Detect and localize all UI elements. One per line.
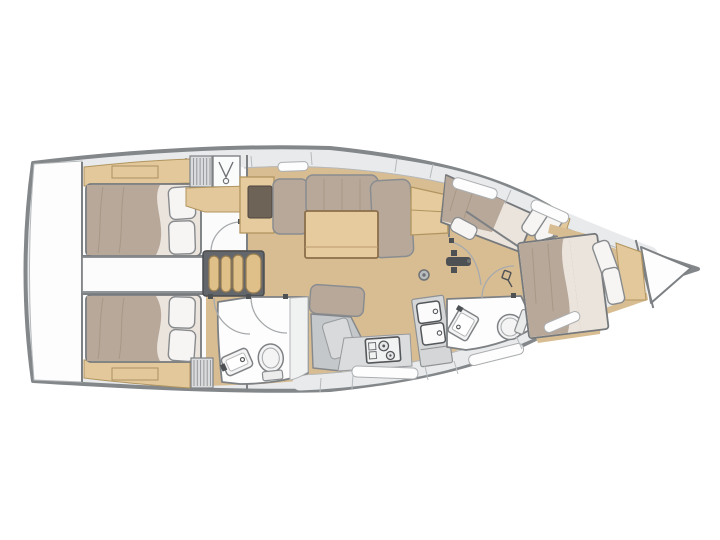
- aft-starboard-pillow-1: [168, 297, 195, 329]
- yacht-floor-plan: Sailing yacht interior layout plan (top …: [0, 0, 720, 540]
- companionway-counter: [186, 186, 247, 212]
- aft-starboard-blanket: [87, 296, 161, 361]
- mast-post: [419, 270, 429, 280]
- sofa-seat-left: [273, 179, 308, 234]
- aft-cabin-starboard: [84, 295, 213, 388]
- aft-starboard-pillow-2: [168, 329, 196, 362]
- forward-port-hinge: [449, 238, 454, 243]
- wet-locker-unit: [213, 156, 240, 187]
- saloon-sideboard-left: [240, 177, 274, 233]
- step-1: [209, 256, 219, 291]
- aft-starboard-grating: [191, 358, 213, 388]
- forward-head-hinge: [511, 293, 516, 298]
- hinge-2: [246, 294, 251, 299]
- step-4: [246, 254, 261, 293]
- floor-plan-canvas: [0, 0, 720, 540]
- hinge-1: [208, 294, 213, 299]
- sideboard-inset: [248, 186, 272, 218]
- companionway-steps: [203, 251, 264, 296]
- engine-compartment: [82, 257, 206, 292]
- sofa-back: [306, 175, 378, 214]
- companionway-grating: [190, 156, 212, 187]
- hinge-3: [283, 294, 288, 299]
- aft-port-pillow-2: [168, 221, 195, 255]
- aft-port-blanket: [87, 185, 161, 255]
- dining-table: [305, 211, 378, 258]
- window-top-1: [278, 161, 308, 171]
- stove: [365, 337, 401, 363]
- step-3: [233, 255, 243, 292]
- step-2: [221, 256, 231, 292]
- forepeak-locker: [641, 247, 691, 303]
- stern-platform: [30, 161, 83, 382]
- aft-head-shower: [290, 297, 308, 380]
- aft-head: [208, 294, 308, 384]
- window-bottom-1: [352, 366, 418, 379]
- settee: [309, 284, 365, 317]
